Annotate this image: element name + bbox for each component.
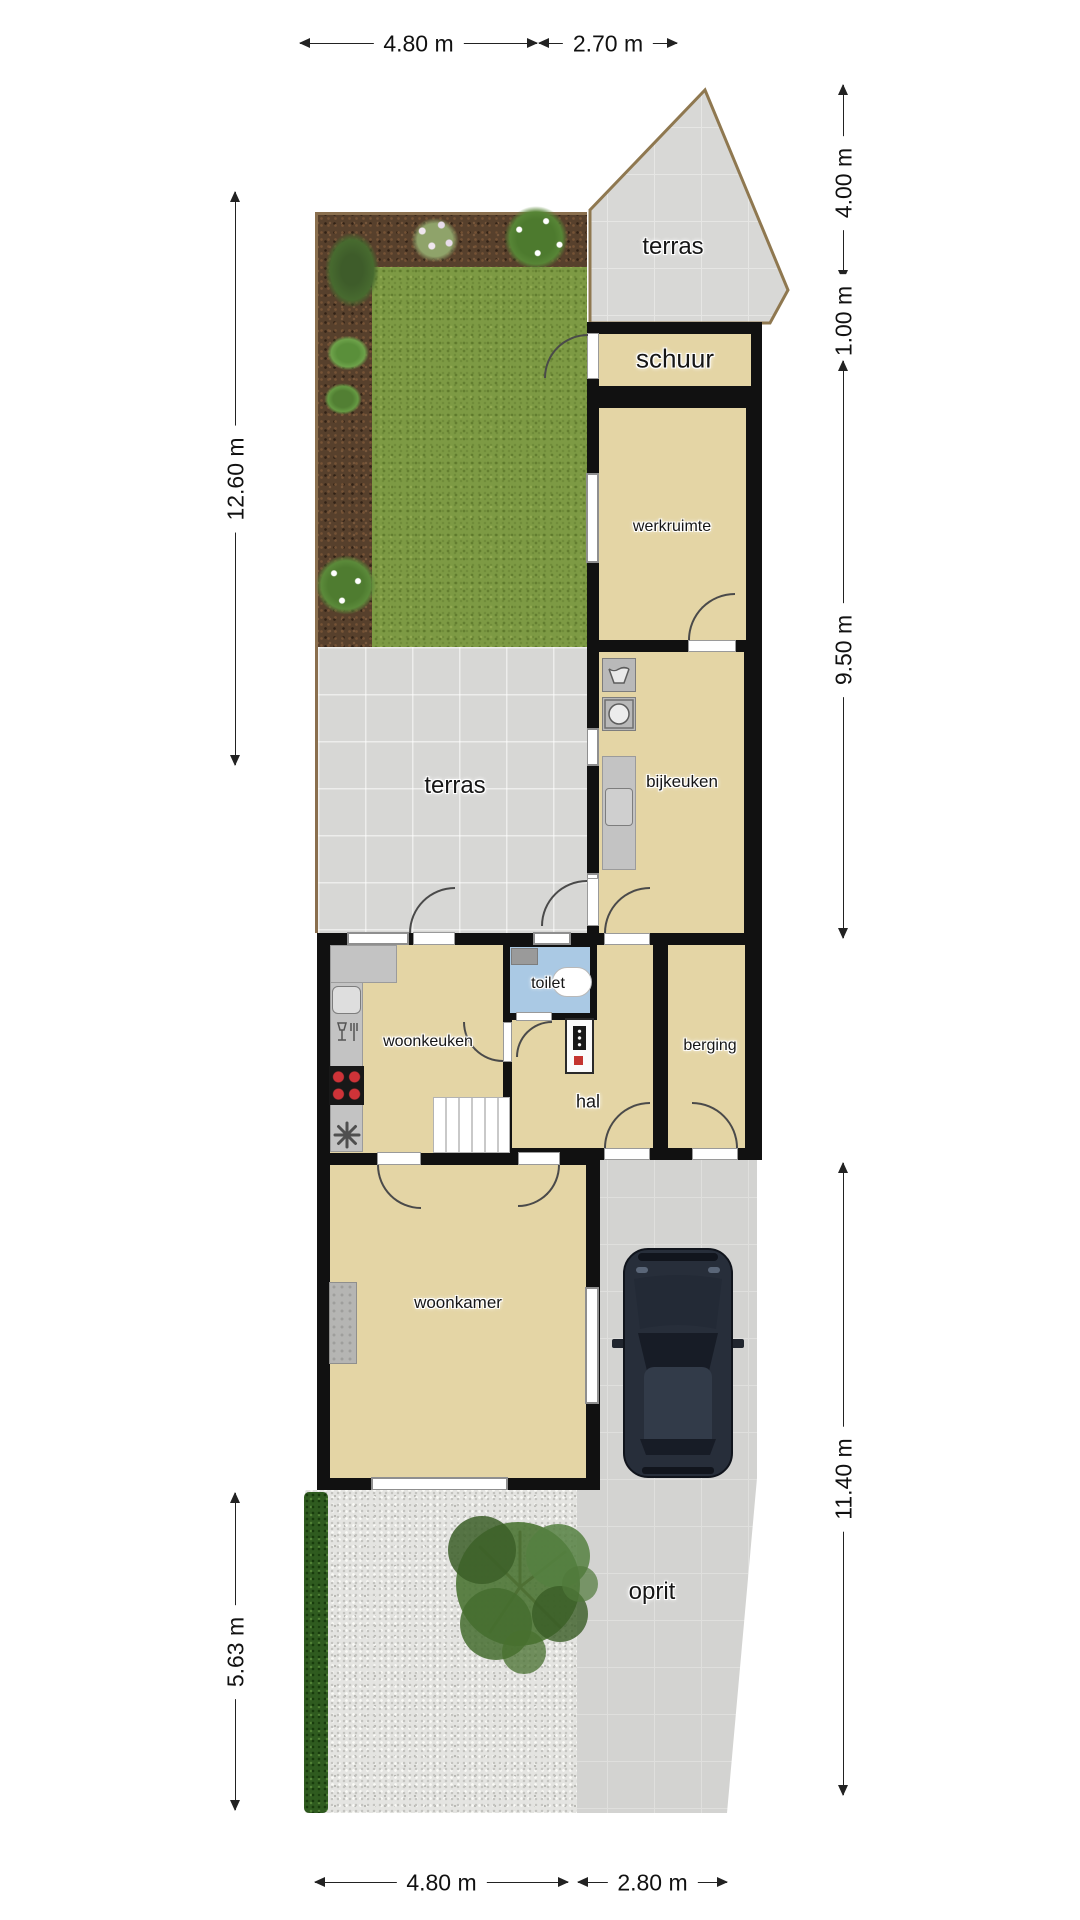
arrow-left-icon	[314, 1877, 325, 1887]
arrow-right-icon	[717, 1877, 728, 1887]
terrace-top-shape	[560, 80, 800, 330]
kitchen-counter	[330, 945, 397, 983]
room-label-berging: berging	[683, 1037, 736, 1055]
arrow-right-icon	[558, 1877, 569, 1887]
floorplan-canvas: terras schuur werkruimte bijkeuken terra…	[0, 0, 1080, 1920]
dim-bottom-1: 4.80 m	[315, 1882, 568, 1883]
dim-label: 9.50 m	[830, 602, 859, 696]
car-icon	[612, 1243, 744, 1483]
dim-bottom-2: 2.80 m	[578, 1882, 727, 1883]
toilet-fan-icon	[511, 948, 538, 965]
dim-label: 2.80 m	[607, 1869, 697, 1898]
room-label-werkruimte: werkruimte	[633, 518, 711, 536]
woonkamer-front-window	[371, 1477, 508, 1491]
dim-right-1: 4.00 m	[843, 85, 844, 280]
dim-label: 12.60 m	[222, 425, 251, 532]
dim-right-3: 9.50 m	[843, 361, 844, 938]
hall-top-window	[533, 932, 571, 945]
fern-icon	[320, 330, 376, 376]
werkruimte-bijkeuken-door	[688, 640, 736, 652]
boiler-icon	[565, 1018, 594, 1074]
extractor-fan-icon	[331, 1119, 363, 1151]
woonkeuken-window	[347, 932, 409, 945]
dim-label: 4.00 m	[830, 135, 859, 229]
fireplace	[329, 1282, 357, 1364]
toilet-door	[516, 1012, 552, 1021]
fern-icon	[318, 378, 368, 420]
room-label-terras-top: terras	[642, 233, 703, 261]
boiler-light	[574, 1056, 583, 1065]
dim-top-1: 4.80 m	[300, 43, 537, 44]
dim-label: 5.63 m	[222, 1604, 251, 1698]
room-label-schuur: schuur	[636, 344, 714, 375]
dim-label: 1.00 m	[830, 273, 859, 367]
garden-lawn	[372, 267, 587, 647]
hedge	[304, 1492, 328, 1813]
dim-label: 11.40 m	[830, 1426, 859, 1531]
staircase	[433, 1097, 510, 1153]
arrow-down-icon	[838, 1785, 848, 1796]
utility-sink-icon	[605, 788, 633, 826]
flowering-bush-icon	[306, 546, 386, 624]
room-label-toilet: toilet	[531, 975, 565, 993]
boiler-panel	[573, 1026, 586, 1050]
bijkeuken-window	[586, 728, 599, 766]
schuur-door	[587, 333, 599, 379]
hall-corridor	[597, 945, 653, 1020]
dim-label: 4.80 m	[373, 30, 463, 59]
shrub-icon	[316, 220, 388, 320]
werkruimte-window	[586, 473, 599, 563]
room-woonkamer	[330, 1165, 586, 1478]
hal-woonkamer-door	[518, 1152, 560, 1165]
dim-label: 4.80 m	[396, 1869, 486, 1898]
arrow-left-icon	[577, 1877, 588, 1887]
stove-icon	[329, 1066, 364, 1105]
room-label-oprit: oprit	[629, 1578, 676, 1606]
room-label-woonkeuken: woonkeuken	[383, 1033, 473, 1051]
terrace-kitchen-door	[413, 932, 455, 945]
dim-left-2: 5.63 m	[235, 1493, 236, 1810]
arrow-left-icon	[299, 38, 310, 48]
arrow-up-icon	[230, 191, 240, 202]
bijkeuken-hal-door	[604, 933, 650, 945]
washing-machine-icon	[602, 658, 636, 692]
dryer-icon	[602, 697, 636, 731]
arrow-up-icon	[838, 1162, 848, 1173]
room-label-bijkeuken: bijkeuken	[646, 772, 718, 792]
dim-right-4: 11.40 m	[843, 1163, 844, 1795]
arrow-left-icon	[538, 38, 549, 48]
room-label-hal: hal	[576, 1092, 600, 1113]
arrow-down-icon	[230, 1800, 240, 1811]
arrow-right-icon	[527, 38, 538, 48]
dim-label: 2.70 m	[563, 30, 653, 59]
tree-icon	[420, 1492, 620, 1697]
room-label-woonkamer: woonkamer	[414, 1293, 502, 1313]
dim-right-2: 1.00 m	[843, 281, 844, 360]
woonkeuken-hal-door	[503, 1022, 512, 1062]
dim-left-1: 12.60 m	[235, 192, 236, 765]
flower-cluster-icon	[403, 210, 467, 270]
arrow-right-icon	[667, 38, 678, 48]
arrow-up-icon	[230, 1492, 240, 1503]
dim-top-2: 2.70 m	[539, 43, 677, 44]
arrow-down-icon	[230, 755, 240, 766]
woonkamer-door	[377, 1152, 421, 1165]
terrace-side-door	[587, 878, 599, 926]
room-label-terras-mid: terras	[424, 772, 485, 800]
arrow-up-icon	[838, 360, 848, 371]
arrow-up-icon	[838, 84, 848, 95]
kitchen-sink-icon	[332, 986, 361, 1014]
dishwasher-icon	[332, 1018, 361, 1048]
arrow-down-icon	[838, 928, 848, 939]
